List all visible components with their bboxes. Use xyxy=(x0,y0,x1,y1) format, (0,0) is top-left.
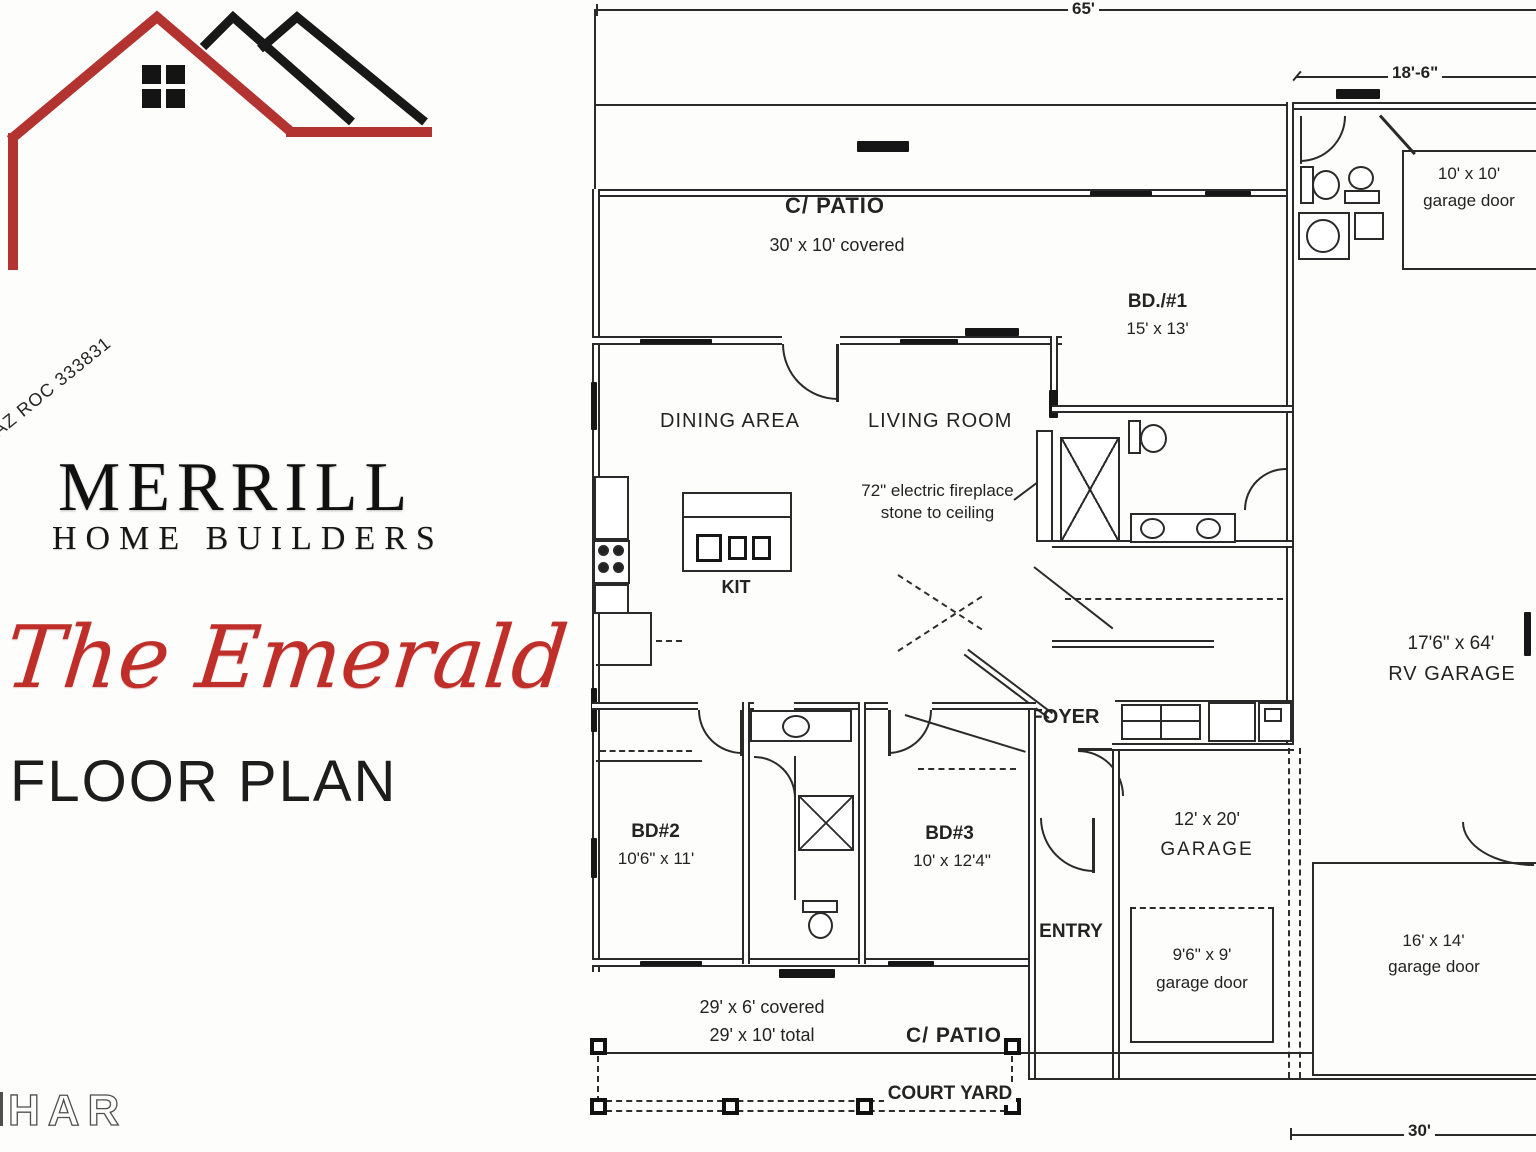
entry-front-door-arc xyxy=(1040,818,1094,872)
watermark-cut-sliver xyxy=(0,1092,3,1126)
laundry-door-arc xyxy=(1300,116,1346,162)
room-label-dining: DINING AREA xyxy=(660,410,800,432)
garage-door-16x14-line1: 16' x 14' xyxy=(1386,932,1481,951)
note-fireplace-line2: stone to ceiling xyxy=(845,504,1030,523)
plan-name-script: The Emerald xyxy=(1,608,573,708)
dim-line-top xyxy=(596,9,1536,11)
wall-corridor-west xyxy=(1028,704,1036,1080)
patio-bottom-size-1: 29' x 6' covered xyxy=(688,998,836,1018)
kitchen-counter-step-v xyxy=(650,612,652,666)
rv-side-door-arc xyxy=(1462,822,1534,866)
powder-sink-counter xyxy=(1344,190,1380,204)
patio-slab-line xyxy=(592,1052,1312,1054)
garage-south-line xyxy=(1028,1078,1536,1080)
room-label-court-yard: COURT YARD xyxy=(884,1084,1016,1105)
stove-burner-3 xyxy=(598,562,609,573)
stove-burner-1 xyxy=(598,545,609,556)
garage-door-10x10-line1: 10' x 10' xyxy=(1408,165,1530,184)
floor-plan-flyer: AZ ROC 333831 MERRILL HOME BUILDERS The … xyxy=(0,0,1536,1152)
island-sink-1 xyxy=(728,536,747,560)
bath-shower xyxy=(798,795,854,851)
kitchen-counter-west xyxy=(594,476,629,540)
brand-name: MERRILL xyxy=(58,448,414,528)
window-south-2 xyxy=(888,961,934,966)
garage-door-16x14-line2: garage door xyxy=(1378,958,1490,977)
wall-bd1-east xyxy=(1286,102,1294,748)
patio-door-arc xyxy=(782,344,838,400)
room-size-bd1: 15' x 13' xyxy=(1105,320,1210,339)
rv-east-wall-mark xyxy=(1524,612,1531,656)
room-label-patio-top: C/ PATIO xyxy=(775,194,895,218)
rv-garage-boundary-dash-2 xyxy=(1299,748,1301,1078)
dim-label-laundry: 18'-6" xyxy=(1388,64,1442,83)
garage-door-96-line1: 9'6" x 9' xyxy=(1158,946,1246,965)
wall-north xyxy=(592,189,1292,197)
bd2-door-arc xyxy=(698,710,742,754)
wall-bath-west xyxy=(742,702,750,964)
powder-toilet-bowl xyxy=(1312,170,1340,200)
master-door-arc xyxy=(1244,468,1286,510)
fireplace-wall-mark xyxy=(1049,390,1058,418)
dashed-angle-2 xyxy=(897,596,982,652)
courtyard-dash-left xyxy=(597,1056,599,1102)
window-south-1 xyxy=(640,961,702,966)
window-house-north-2 xyxy=(900,339,958,344)
left-boundary-line xyxy=(594,9,596,192)
kitchen-counter-step-b xyxy=(596,664,652,666)
watermark: HAR xyxy=(8,1086,127,1136)
laundry-washer-drum xyxy=(1306,219,1340,253)
room-label-foyer: FOYER xyxy=(1030,706,1100,728)
wall-master-closet-south xyxy=(1052,640,1214,648)
courtyard-post-b1 xyxy=(590,1098,607,1115)
dim-label-bottom-right: 30' xyxy=(1404,1122,1435,1141)
room-label-entry: ENTRY xyxy=(1036,922,1106,943)
island-range xyxy=(696,534,722,562)
window-house-north-1 xyxy=(640,339,712,344)
window-bd1-top-1 xyxy=(1090,191,1152,196)
nook-cabinet-1-mid-h xyxy=(1121,720,1201,722)
courtyard-post-tl xyxy=(590,1038,607,1055)
room-size-garage: 12' x 20' xyxy=(1162,810,1252,830)
window-bd1-top-2 xyxy=(1205,191,1251,196)
nook-cabinet-1-mid-v xyxy=(1160,704,1162,740)
illegible-label-roofline xyxy=(857,141,909,152)
powder-sink xyxy=(1348,166,1374,190)
room-label-bd2: BD#2 xyxy=(618,822,693,843)
garage-door-10x10-line2: garage door xyxy=(1408,192,1530,211)
master-sink-2 xyxy=(1196,518,1221,539)
wall-bd1-south xyxy=(1052,405,1292,413)
kitchen-island-counter-line xyxy=(684,516,790,518)
patio-door-leaf xyxy=(836,344,839,402)
courtyard-dash-bottom-2 xyxy=(606,1110,1006,1112)
dim-tick-top-left xyxy=(596,4,598,16)
fireplace xyxy=(1036,430,1053,542)
dim-tick-bottom-right xyxy=(1290,1128,1292,1140)
garage-door-96-line2: garage door xyxy=(1147,974,1257,993)
room-label-bd3: BD#3 xyxy=(912,824,987,845)
rv-garage-boundary-dash-1 xyxy=(1288,748,1290,1078)
island-sink-2 xyxy=(752,536,771,560)
nook-cabinet-2 xyxy=(1208,702,1256,742)
room-label-kitchen: KIT xyxy=(706,578,766,598)
license-number: AZ ROC 333831 xyxy=(0,286,173,441)
room-size-rv-garage: 17'6" x 64' xyxy=(1385,634,1517,655)
master-shower xyxy=(1060,437,1120,542)
window-west-1 xyxy=(591,382,597,430)
stove-burner-2 xyxy=(613,545,624,556)
bd3-closet-shelf xyxy=(918,768,1016,770)
stove-burner-4 xyxy=(613,562,624,573)
bd2-closet-wall xyxy=(596,760,702,762)
plan-caption: FLOOR PLAN xyxy=(10,748,397,815)
bath-door-arc xyxy=(754,756,796,798)
brand-logo xyxy=(0,0,460,285)
master-sink-1 xyxy=(1140,518,1165,539)
bath-partition xyxy=(794,756,796,900)
room-size-bd3: 10' x 12'4" xyxy=(896,852,1008,871)
room-size-patio-top: 30' x 10' covered xyxy=(762,236,912,256)
master-closet-shelf xyxy=(1065,598,1283,600)
bath-toilet-bowl xyxy=(808,912,833,939)
wall-laundry-top xyxy=(1286,102,1536,110)
wall-garage-north xyxy=(1112,743,1294,751)
courtyard-post-b2 xyxy=(722,1098,739,1115)
illegible-label-north-wall xyxy=(965,328,1019,336)
bath-sink xyxy=(782,715,810,738)
kitchen-dashed-gap xyxy=(656,640,682,642)
window-west-2 xyxy=(591,688,597,732)
kitchen-counter-step-h xyxy=(628,612,652,614)
wall-corridor-east xyxy=(1112,743,1120,1080)
master-toilet-bowl xyxy=(1140,424,1167,453)
courtyard-post-tr xyxy=(1004,1038,1021,1055)
room-label-patio-bottom: C/ PATIO xyxy=(895,1024,1013,1047)
dim-label-top: 65' xyxy=(1068,0,1099,19)
illegible-label-topright xyxy=(1336,89,1380,99)
room-label-garage: GARAGE xyxy=(1157,840,1257,861)
illegible-label-south-wall xyxy=(779,969,835,978)
note-fireplace-line1: 72" electric fireplace xyxy=(845,482,1030,501)
wall-bedrooms-north xyxy=(592,702,1036,710)
laundry-counter xyxy=(1354,212,1384,240)
wall-bath-east xyxy=(858,702,866,964)
roof-logo-graphic xyxy=(0,0,460,285)
room-label-rv-garage: RV GARAGE xyxy=(1382,663,1522,685)
bd2-door-leaf xyxy=(740,710,743,756)
bd2-closet-shelf xyxy=(600,750,692,752)
room-label-bd1: BD./#1 xyxy=(1110,292,1205,313)
window-west-3 xyxy=(591,838,597,878)
brand-subtitle: HOME BUILDERS xyxy=(52,520,444,558)
kitchen-counter-west-2 xyxy=(594,584,629,614)
laundry-door-leaf xyxy=(1300,116,1302,164)
room-label-living: LIVING ROOM xyxy=(868,410,1008,432)
entry-front-door-leaf xyxy=(1092,818,1095,873)
bd3-door-leaf xyxy=(888,710,891,756)
patio-bottom-size-2: 29' x 10' total xyxy=(696,1026,828,1046)
room-size-bd2: 10'6" x 11' xyxy=(600,850,712,869)
courtyard-post-b3 xyxy=(856,1098,873,1115)
nook-cabinet-3-inner xyxy=(1264,708,1282,722)
